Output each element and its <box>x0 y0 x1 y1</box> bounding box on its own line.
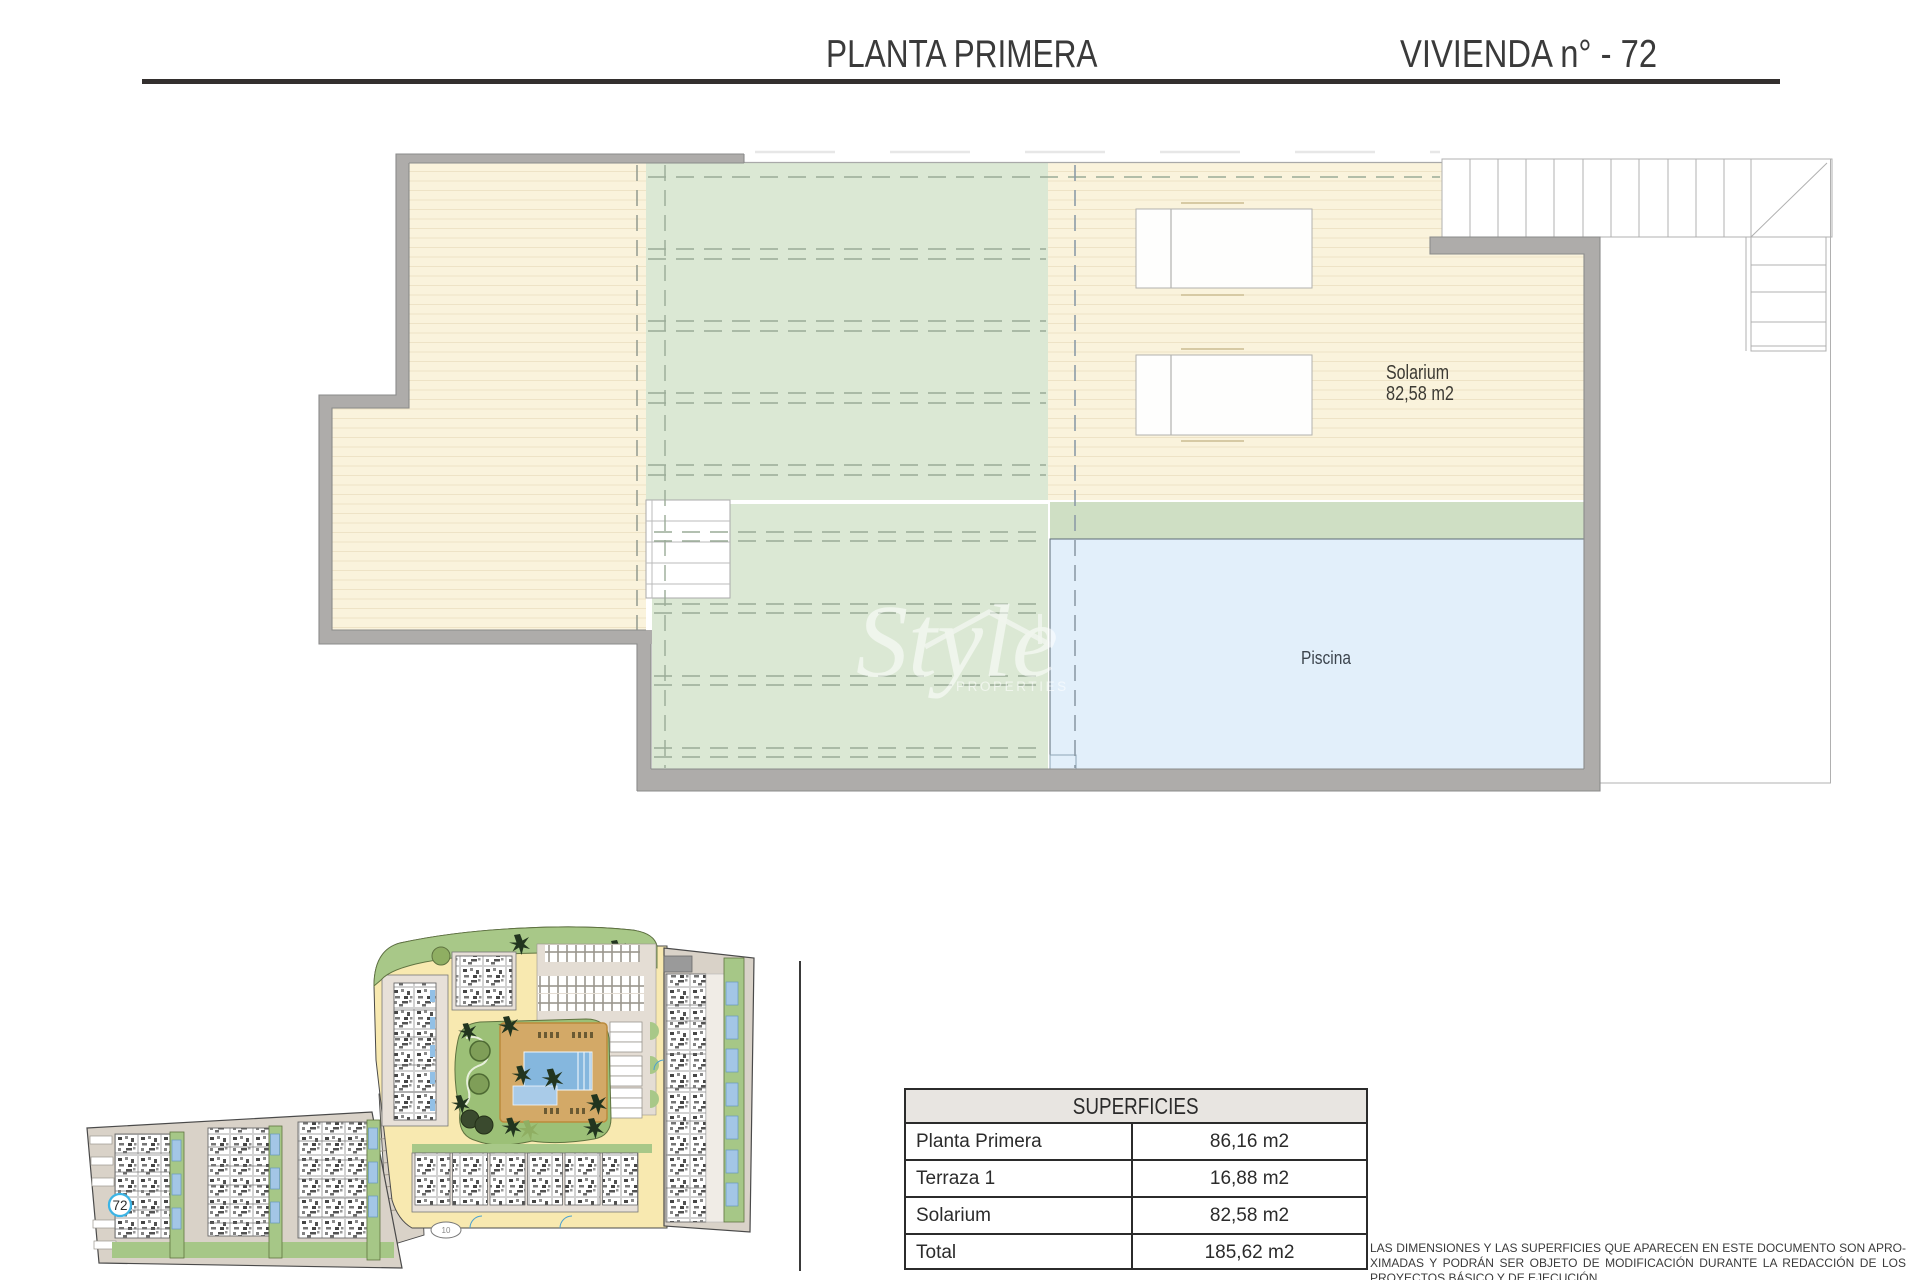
svg-text:82,58 m2: 82,58 m2 <box>1386 383 1454 405</box>
svg-text:PROPERTIES: PROPERTIES <box>956 679 1069 694</box>
svg-text:72: 72 <box>112 1198 127 1213</box>
svg-text:Piscina: Piscina <box>1301 648 1352 668</box>
svg-text:Solarium: Solarium <box>1386 362 1449 384</box>
svg-text:10: 10 <box>442 1226 451 1235</box>
